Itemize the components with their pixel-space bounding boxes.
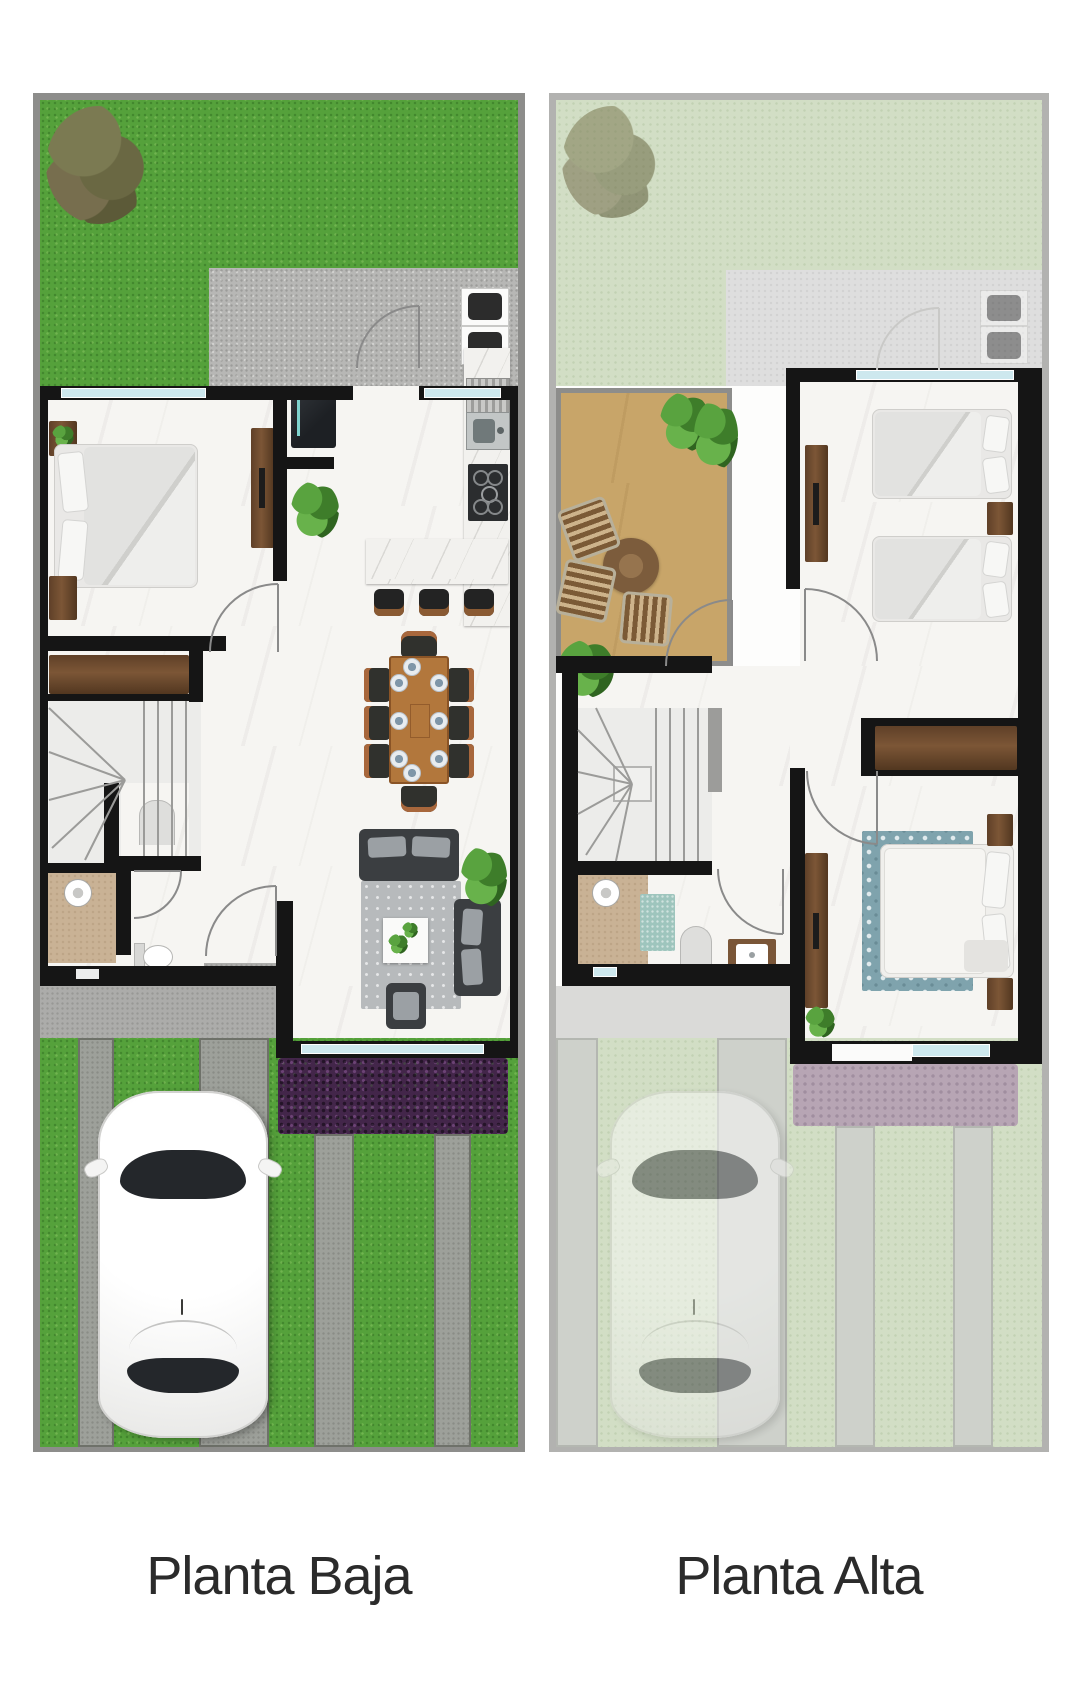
driveway-strip [434,1134,471,1447]
kitchen-island [366,539,508,584]
car-rear-window [127,1358,239,1393]
nightstand [49,576,77,620]
wall [556,656,712,673]
floor-plan-sheet: Planta Baja Planta Alta [0,0,1066,1700]
car-trunk-line [641,1320,750,1350]
kitchen-plant [291,481,339,539]
plate [430,712,448,730]
wall [104,783,119,863]
car-antenna [181,1299,183,1315]
twin-bed [872,409,1012,499]
living-window [301,1044,484,1054]
bath-mat [640,894,675,951]
dining-chair [364,706,390,740]
shower-head [64,879,92,907]
car-antenna [693,1299,695,1315]
car-windshield [120,1150,246,1199]
bedroom2-window [856,370,1014,380]
bath-door-leaf [680,926,712,965]
wall [40,386,48,986]
hall-closet [49,655,189,694]
master-window [912,1044,990,1057]
garden-tree [46,106,151,224]
car-rear-window [639,1358,751,1393]
faded-strip [835,1126,875,1447]
table-plant [388,934,408,954]
terrace-vine [694,400,738,470]
nightstand [987,502,1013,535]
stair-landing [613,766,652,802]
front-sidewalk [40,986,278,1038]
plate [403,764,421,782]
wall [562,656,578,986]
plate [390,712,408,730]
dining-chair [364,744,390,778]
terrace-chair [619,591,673,647]
bedroom-window [61,388,206,398]
shower-head [592,879,620,907]
floor-plan-planta-alta [549,93,1049,1452]
understairs-door [139,800,175,845]
faded-sidewalk [556,986,790,1038]
bath-window [76,969,99,979]
master-bed [880,844,1014,978]
armchair [386,983,426,1029]
plate [430,674,448,692]
kitchen-sink [466,412,510,450]
loveseat [454,899,501,996]
plate [390,674,408,692]
faded-washer [980,290,1028,326]
twin-bed [872,536,1012,622]
stair-half-wall [708,708,722,792]
bar-stool [419,589,449,616]
wall [116,863,131,955]
bedroom-dresser [251,428,274,548]
nightstand [987,814,1013,846]
faded-car [610,1091,780,1438]
plate [430,750,448,768]
faded-strip [556,1038,598,1447]
master-wardrobe [805,853,828,1008]
nightstand [987,978,1013,1010]
wall [40,863,116,873]
wall [1018,368,1042,1064]
car [98,1091,268,1438]
wall [276,901,293,1058]
dining-chair [401,631,437,657]
laundry-washer [461,288,509,326]
living-plant [461,846,507,908]
wall [189,641,203,702]
car-trunk-line [129,1320,238,1350]
flower-hedge [278,1058,508,1134]
wall [273,386,287,581]
wall [786,368,800,589]
bedroom-bed [54,444,198,588]
wall [510,386,518,1058]
car-windshield [632,1150,758,1199]
sofa [359,829,459,881]
wall [40,694,203,701]
stove [468,464,508,521]
floor-plan-planta-baja [33,93,525,1452]
bedroom2-dresser [805,445,828,562]
wall [287,457,334,469]
driveway-strip [314,1134,354,1447]
plan-label-planta-alta: Planta Alta [549,1545,1049,1607]
dining-chair [448,706,474,740]
dining-chair [364,668,390,702]
dining-chair [401,786,437,812]
bar-stool [374,589,404,616]
wall [790,768,805,1064]
faded-hedge [793,1064,1018,1126]
plate [403,658,421,676]
faded-tree [562,106,662,218]
wall [578,861,712,875]
dining-chair [448,744,474,778]
master-closet-front [875,726,1017,770]
plan-label-planta-baja: Planta Baja [33,1545,525,1607]
faded-strip [953,1126,993,1447]
dining-chair [448,668,474,702]
kitchen-window [424,388,501,398]
bath-window [593,967,617,977]
bar-stool [464,589,494,616]
faded-dryer [980,326,1028,364]
table-plant [402,922,418,938]
master-plant [805,1006,835,1038]
wall-gap [832,1044,912,1061]
